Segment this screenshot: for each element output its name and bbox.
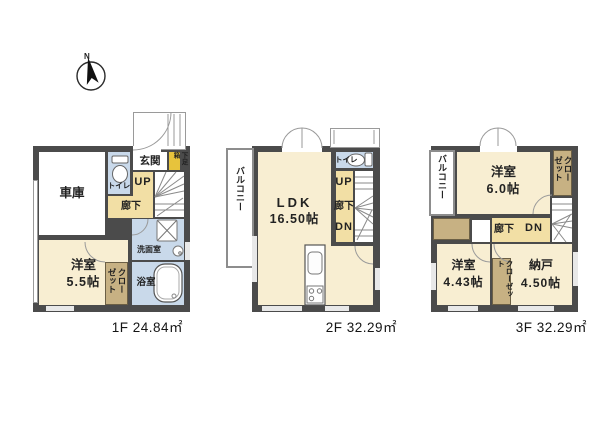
closet-1f-label: クローゼット	[107, 268, 127, 301]
shoe-box-label: 下足箱	[171, 152, 187, 170]
bedroom6-size: 6.0帖	[457, 182, 550, 196]
dn-2f-label: DN	[334, 221, 354, 234]
floor1-area-label: 1F 24.84㎡	[73, 316, 183, 336]
hall-2f-label: 廊下	[331, 201, 357, 213]
floor3-area-label: 3F 32.29㎡	[477, 316, 587, 336]
stairs-2f-lines	[355, 177, 373, 240]
north-label-glyph: N	[84, 52, 90, 61]
kitchen-icon	[305, 245, 325, 305]
garage-label: 車庫	[39, 186, 105, 200]
floorplan-canvas: N	[0, 0, 600, 437]
stairs-1f-lines	[155, 172, 184, 216]
porch-lines	[133, 112, 180, 150]
dn-3f-label: DN	[522, 222, 546, 235]
bedroom4-name: 洋室	[437, 259, 490, 273]
stairs-3f-lines	[552, 204, 572, 242]
hall-1f-label: 廊下	[110, 201, 152, 213]
compass-icon: N	[77, 52, 105, 90]
closet-3f-top-label: クローゼット	[554, 156, 572, 189]
storage-size: 4.50帖	[510, 277, 572, 291]
balcony-3f-label: バルコニー	[436, 154, 448, 214]
door-arcs-1f	[85, 219, 148, 262]
bathroom-label: 浴室	[133, 278, 159, 289]
toilet-icon-1f	[112, 156, 128, 183]
washing-machine-icon	[157, 220, 177, 241]
hall-3f-label: 廊下	[491, 224, 517, 236]
bedroom4-size: 4.43帖	[437, 276, 490, 290]
ldk-name: LDK	[258, 196, 331, 211]
balcony-2f-label: バルコニー	[234, 166, 246, 230]
toilet-1f-label: トイレ	[106, 182, 132, 191]
bedroom6-name: 洋室	[457, 165, 550, 179]
floor2-area-label: 2F 32.29㎡	[287, 316, 397, 336]
ldk-size: 16.50帖	[258, 212, 331, 226]
washroom-label: 洗面室	[130, 245, 168, 254]
sink-icon	[173, 246, 183, 256]
storage-name: 納戸	[510, 259, 572, 273]
entrance-label: 玄関	[133, 155, 167, 167]
up-2f-label: UP	[334, 176, 354, 189]
toilet-2f-label: トイレ	[335, 156, 357, 165]
up-1f-label: UP	[133, 176, 153, 189]
